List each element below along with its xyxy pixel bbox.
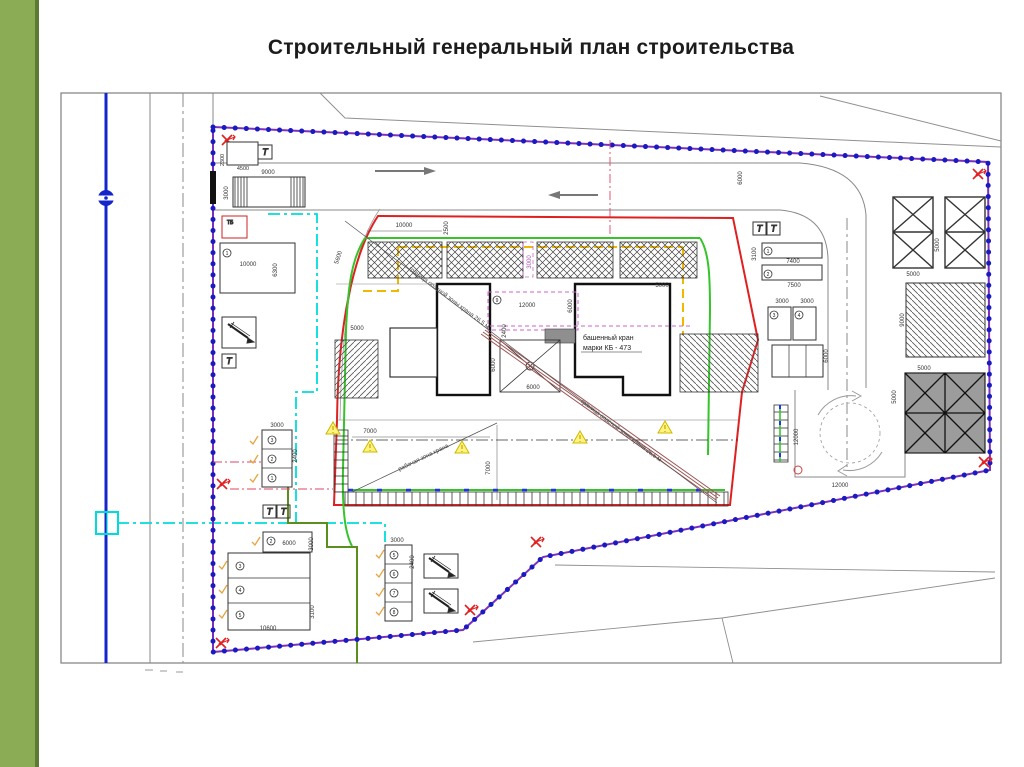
dim-label: 3100 <box>752 247 758 261</box>
dim-label: 12000 <box>832 483 849 489</box>
dim-label: 10600 <box>260 626 277 632</box>
dim-label: 3100 <box>310 605 316 619</box>
dim-label: 2300 <box>220 154 226 166</box>
dim-label: 3000 <box>270 423 284 429</box>
dim-label: 2500 <box>444 221 450 235</box>
dim-label: 6000 <box>738 171 744 185</box>
dim-label: 12000 <box>519 303 536 309</box>
dim-label: 6300 <box>273 263 279 277</box>
dim-label: 7000 <box>486 461 492 475</box>
dim-label: 6000 <box>568 299 574 313</box>
site-plan-drawing: Т Т Т Т Т Т ТБ башенный кран марки КБ - … <box>0 0 1024 767</box>
dim-label: 10000 <box>396 223 413 229</box>
dim-label: 6000 <box>491 358 497 372</box>
dim-label: 5000 <box>935 238 941 252</box>
position-number: 4 <box>239 588 242 594</box>
position-number: 2 <box>270 539 273 545</box>
position-number: 3 <box>239 564 242 570</box>
gray-storage-square <box>905 373 985 453</box>
dim-label: 6000 <box>824 349 830 363</box>
drawing-frame <box>61 93 1001 672</box>
dim-label: 3000 <box>390 538 404 544</box>
position-number: 7 <box>393 591 396 597</box>
dim-label: 12000 <box>794 428 800 445</box>
dim-label: 3000 <box>800 299 814 305</box>
position-number: 4 <box>798 313 801 319</box>
position-number: 5 <box>239 613 242 619</box>
dim-label: 5000 <box>655 283 669 289</box>
gate <box>210 171 216 204</box>
dim-label: 7400 <box>786 259 800 265</box>
position-number: 1 <box>767 249 770 255</box>
dim-label: 3000 <box>775 299 789 305</box>
dim-label: 7000 <box>363 429 377 435</box>
dim-label: 4500 <box>237 166 249 172</box>
dim-label: 6000 <box>282 541 296 547</box>
position-number: 9 <box>496 298 499 304</box>
dim-label: 9000 <box>261 170 275 176</box>
position-number: 1 <box>271 476 274 482</box>
position-number: 2 <box>271 457 274 463</box>
dim-label: 6000 <box>526 385 540 391</box>
tb-board-label: ТБ <box>227 220 234 226</box>
dim-label: 2400 <box>410 555 416 569</box>
dim-label: 10000 <box>240 262 257 268</box>
svg-text:марки КБ - 473: марки КБ - 473 <box>583 345 631 352</box>
dim-label: 5000 <box>892 390 898 404</box>
dim-label: 5000 <box>350 326 364 332</box>
position-number: 8 <box>393 610 396 616</box>
dim-label: 2400 <box>293 449 299 463</box>
position-number: 5 <box>393 553 396 559</box>
position-number: 3 <box>271 438 274 444</box>
dim-label: 9000 <box>900 313 906 327</box>
dim-label: 2400 <box>502 324 508 338</box>
dim-label: 5000 <box>906 272 920 278</box>
position-number: 1 <box>226 251 229 257</box>
dim-label: 7500 <box>787 283 801 289</box>
dim-label: 3000 <box>309 537 315 551</box>
dim-label: 3000 <box>224 186 230 200</box>
position-number: 6 <box>393 572 396 578</box>
position-number: 3 <box>773 313 776 319</box>
dim-label: 5000 <box>917 366 931 372</box>
dim-label: 3000 <box>527 255 533 269</box>
svg-text:башенный кран: башенный кран <box>583 334 634 342</box>
position-number: 2 <box>767 272 770 278</box>
slide: Строительный генеральный план строительс… <box>0 0 1024 767</box>
